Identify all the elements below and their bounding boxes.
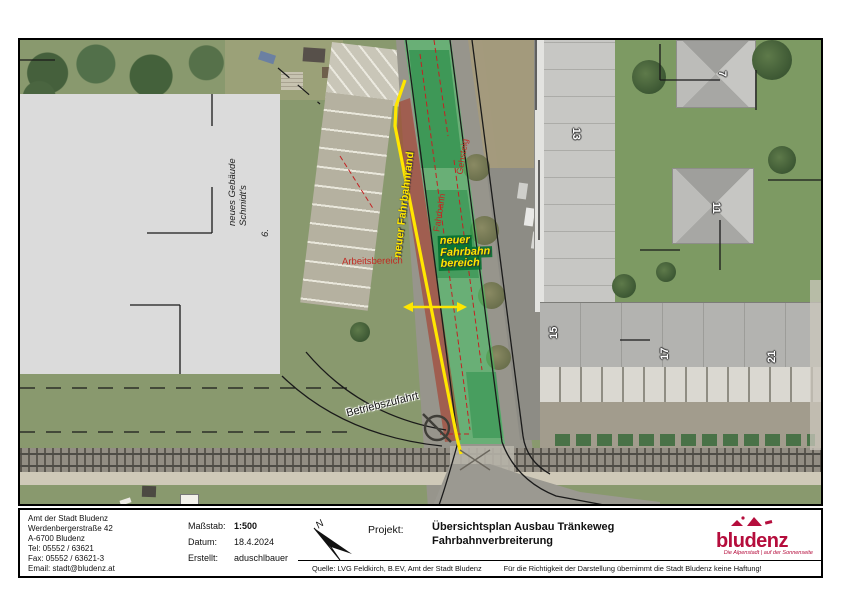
crossing-marks: [460, 450, 490, 470]
house-number-11: 11: [709, 196, 721, 220]
author-label: Erstellt:: [188, 550, 234, 566]
author-row: Erstellt:aduschlbauer: [188, 550, 288, 566]
date-row: Datum:18.4.2024: [188, 534, 288, 550]
plan-linework: [20, 40, 823, 506]
title-block: Amt der Stadt Bludenz Werdenbergerstraße…: [18, 508, 823, 578]
source-text: Quelle: LVG Feldkirch, B.EV, Amt der Sta…: [312, 564, 482, 576]
issuer-address: Amt der Stadt Bludenz Werdenbergerstraße…: [28, 514, 115, 574]
project-label: Projekt:: [368, 524, 404, 536]
scale-row: Maßstab:1:500: [188, 518, 288, 534]
house-number-7: 7: [715, 62, 727, 86]
address-line: Werdenbergerstraße 42: [28, 524, 115, 534]
bludenz-logo: bludenz Die Alpenstadt | auf der Sonnens…: [691, 514, 813, 556]
logo-marks-icon: [691, 515, 813, 527]
house-number-13: 13: [569, 122, 581, 146]
address-line: Amt der Stadt Bludenz: [28, 514, 115, 524]
house-number-21: 21: [767, 345, 779, 369]
svg-text:N: N: [314, 518, 327, 532]
project-title: Übersichtsplan Ausbau Tränkeweg Fahrbahn…: [432, 521, 614, 548]
date-label: Datum:: [188, 534, 234, 550]
house-number-17: 17: [660, 342, 672, 366]
site-plan-map: neuer Fahrbahnrand neuer Fahrbahn bereic…: [18, 38, 823, 506]
label-arbeitsbereich: Arbeitsbereich: [342, 256, 403, 267]
scale-value: 1:500: [234, 521, 257, 531]
label-line: neues Gebäude: [227, 158, 238, 226]
house-number-15: 15: [549, 321, 561, 345]
turning-circle-symbol: [423, 414, 451, 442]
width-arrow: [403, 302, 467, 312]
project-title-line1: Übersichtsplan Ausbau Tränkeweg: [432, 521, 614, 535]
plan-meta: Maßstab:1:500 Datum:18.4.2024 Erstellt:a…: [188, 518, 288, 566]
scale-label: Maßstab:: [188, 518, 234, 534]
boundary-dashed-lines: [20, 68, 355, 432]
author-value: aduschlbauer: [234, 553, 288, 563]
logo-tagline: Die Alpenstadt | auf der Sonnenseite: [691, 550, 813, 556]
label-neues-gebaeude: neues Gebäude Schmidt's: [227, 171, 251, 281]
address-line: A-6700 Bludenz: [28, 534, 115, 544]
plan-sheet: neuer Fahrbahnrand neuer Fahrbahn bereic…: [0, 0, 841, 596]
label-line: bereich: [438, 258, 482, 271]
label-parcel-6: 6.: [261, 213, 271, 253]
project-title-line2: Fahrbahnverbreiterung: [432, 535, 614, 549]
logo-wordmark: bludenz: [691, 532, 813, 550]
label-line: Schmidt's: [238, 185, 249, 226]
address-line: Email: stadt@bludenz.at: [28, 564, 115, 574]
north-arrow-icon: N: [306, 516, 362, 562]
date-value: 18.4.2024: [234, 537, 274, 547]
source-strip: Quelle: LVG Feldkirch, B.EV, Amt der Sta…: [298, 560, 821, 576]
disclaimer-text: Für die Richtigkeit der Darstellung über…: [504, 564, 762, 576]
address-line: Fax: 05552 / 63621-3: [28, 554, 115, 564]
address-line: Tel: 05552 / 63621: [28, 544, 115, 554]
cadastre-lines: [20, 40, 823, 506]
